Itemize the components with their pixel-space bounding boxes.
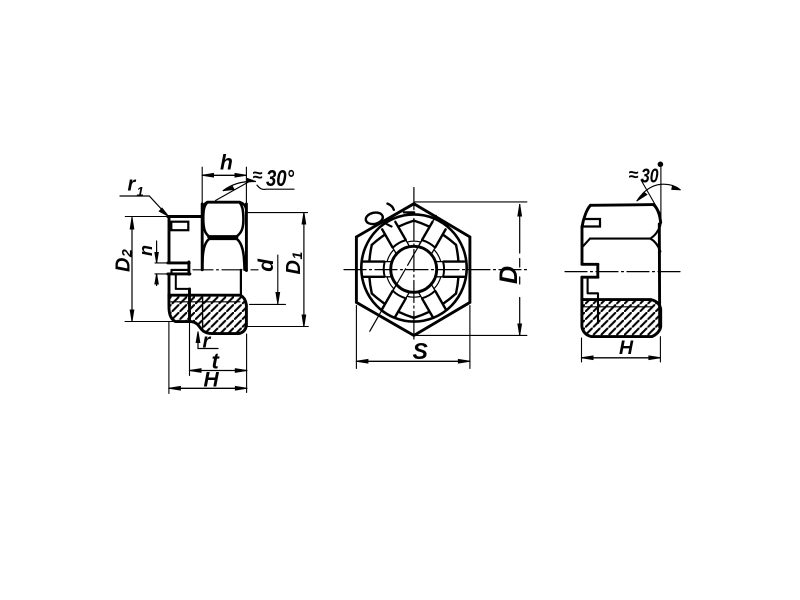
svg-text:H: H xyxy=(204,369,220,392)
svg-text:r: r xyxy=(128,174,137,196)
svg-text:D: D xyxy=(283,260,305,274)
svg-text:n: n xyxy=(136,245,156,256)
svg-text:S: S xyxy=(413,338,429,364)
svg-text:D: D xyxy=(495,266,523,284)
svg-text:r: r xyxy=(203,331,212,353)
svg-text:30°: 30° xyxy=(266,165,295,191)
svg-text:≈: ≈ xyxy=(253,165,263,185)
svg-text:≈: ≈ xyxy=(629,165,639,185)
svg-text:D: D xyxy=(113,258,135,272)
svg-text:h: h xyxy=(220,151,233,174)
svg-text:1: 1 xyxy=(289,252,305,260)
svg-text:1: 1 xyxy=(137,184,144,199)
svg-text:H: H xyxy=(619,337,634,359)
svg-text:30: 30 xyxy=(641,165,659,187)
svg-text:2: 2 xyxy=(119,249,135,258)
svg-text:d: d xyxy=(255,258,278,272)
